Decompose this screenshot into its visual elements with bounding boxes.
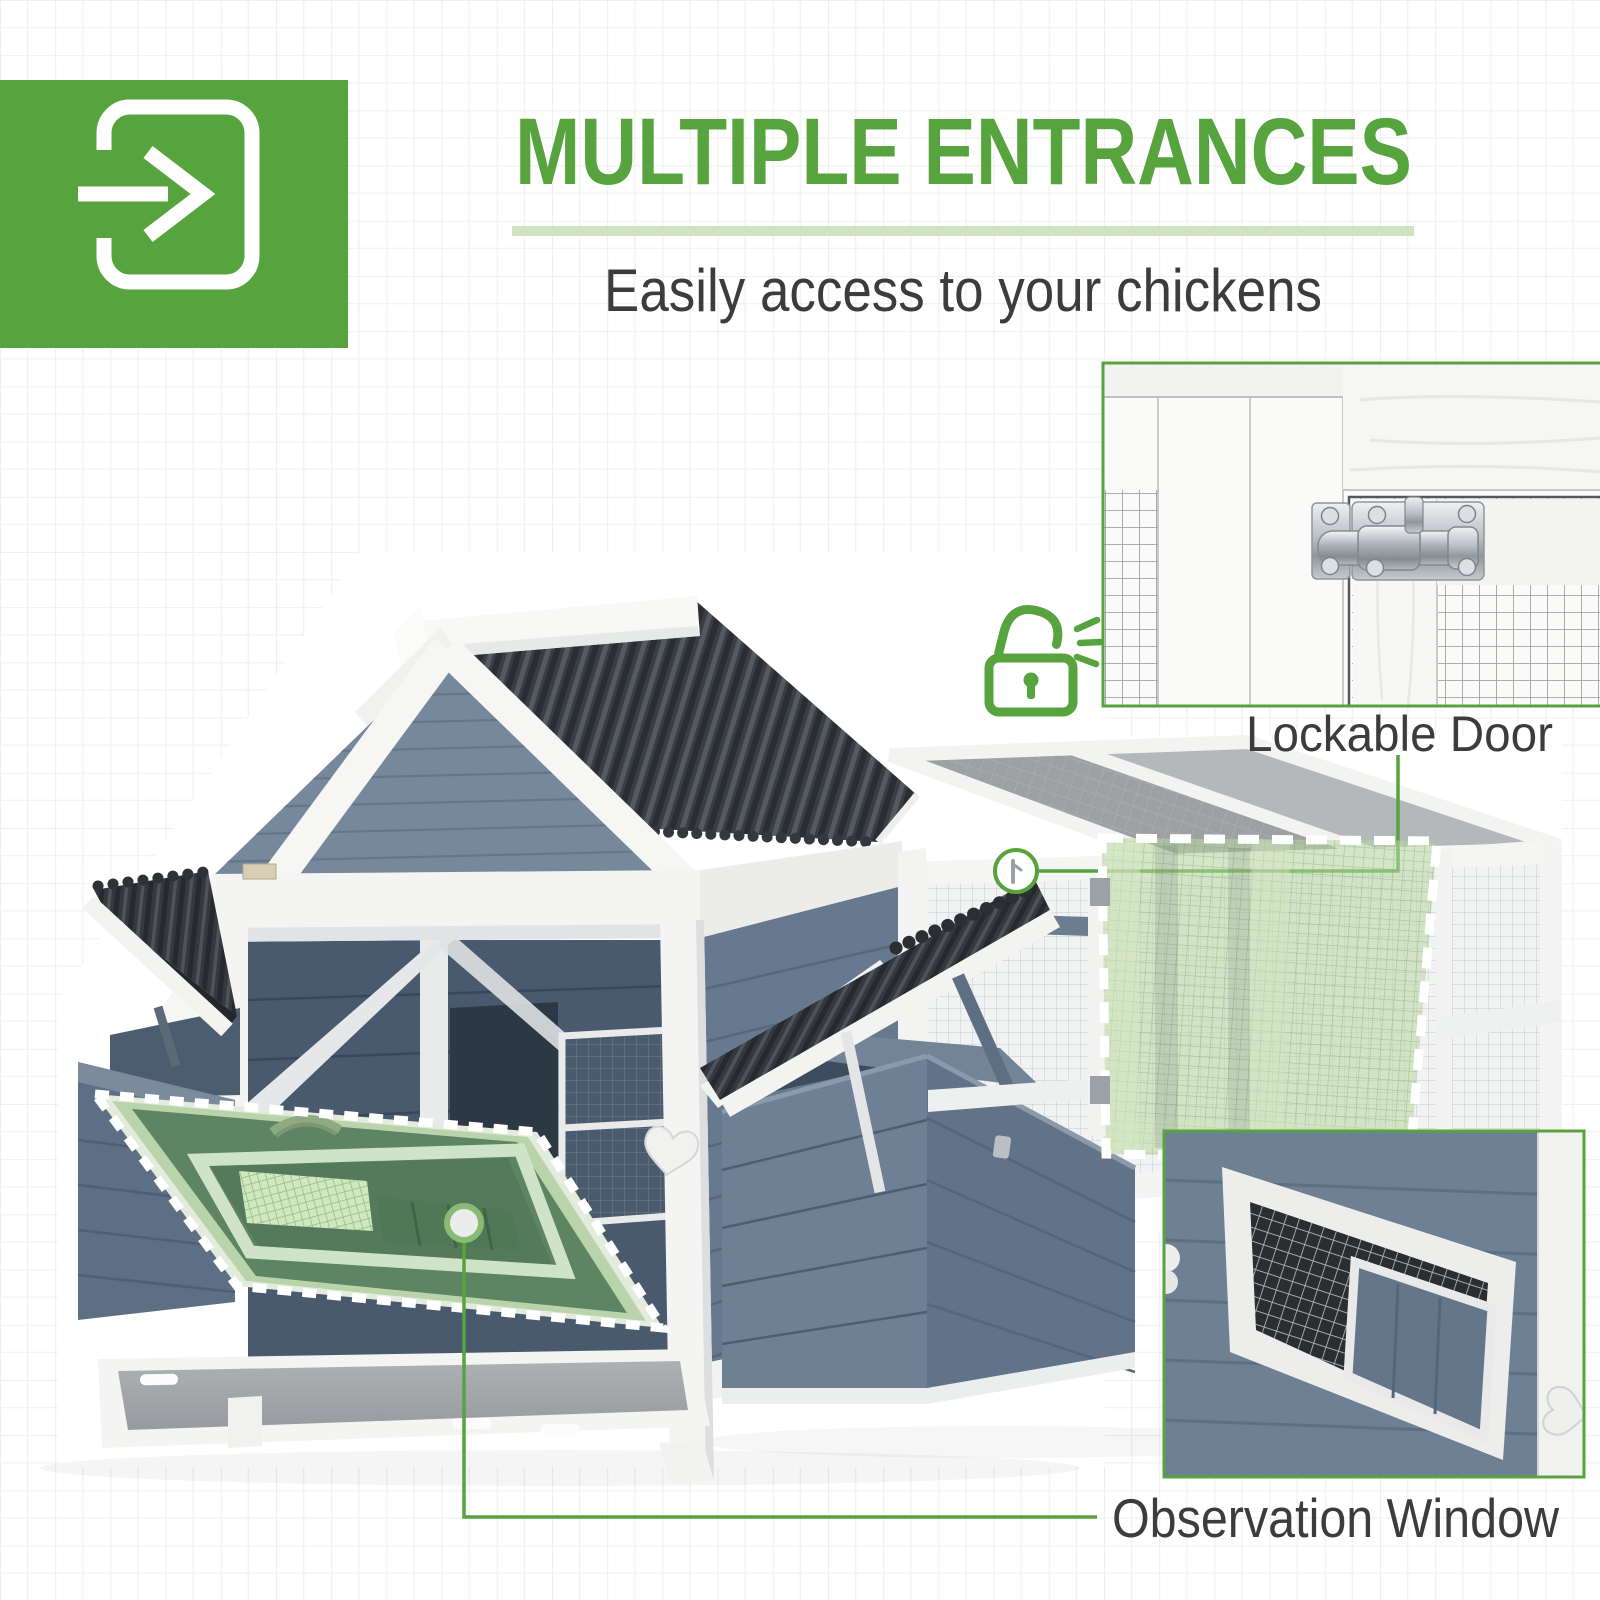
svg-text:Easily access to your chickens: Easily access to your chickens — [604, 257, 1322, 324]
svg-text:Observation Window: Observation Window — [1112, 1487, 1559, 1549]
svg-text:MULTIPLE ENTRANCES: MULTIPLE ENTRANCES — [515, 99, 1412, 205]
svg-text:Lockable Door: Lockable Door — [1246, 706, 1553, 762]
